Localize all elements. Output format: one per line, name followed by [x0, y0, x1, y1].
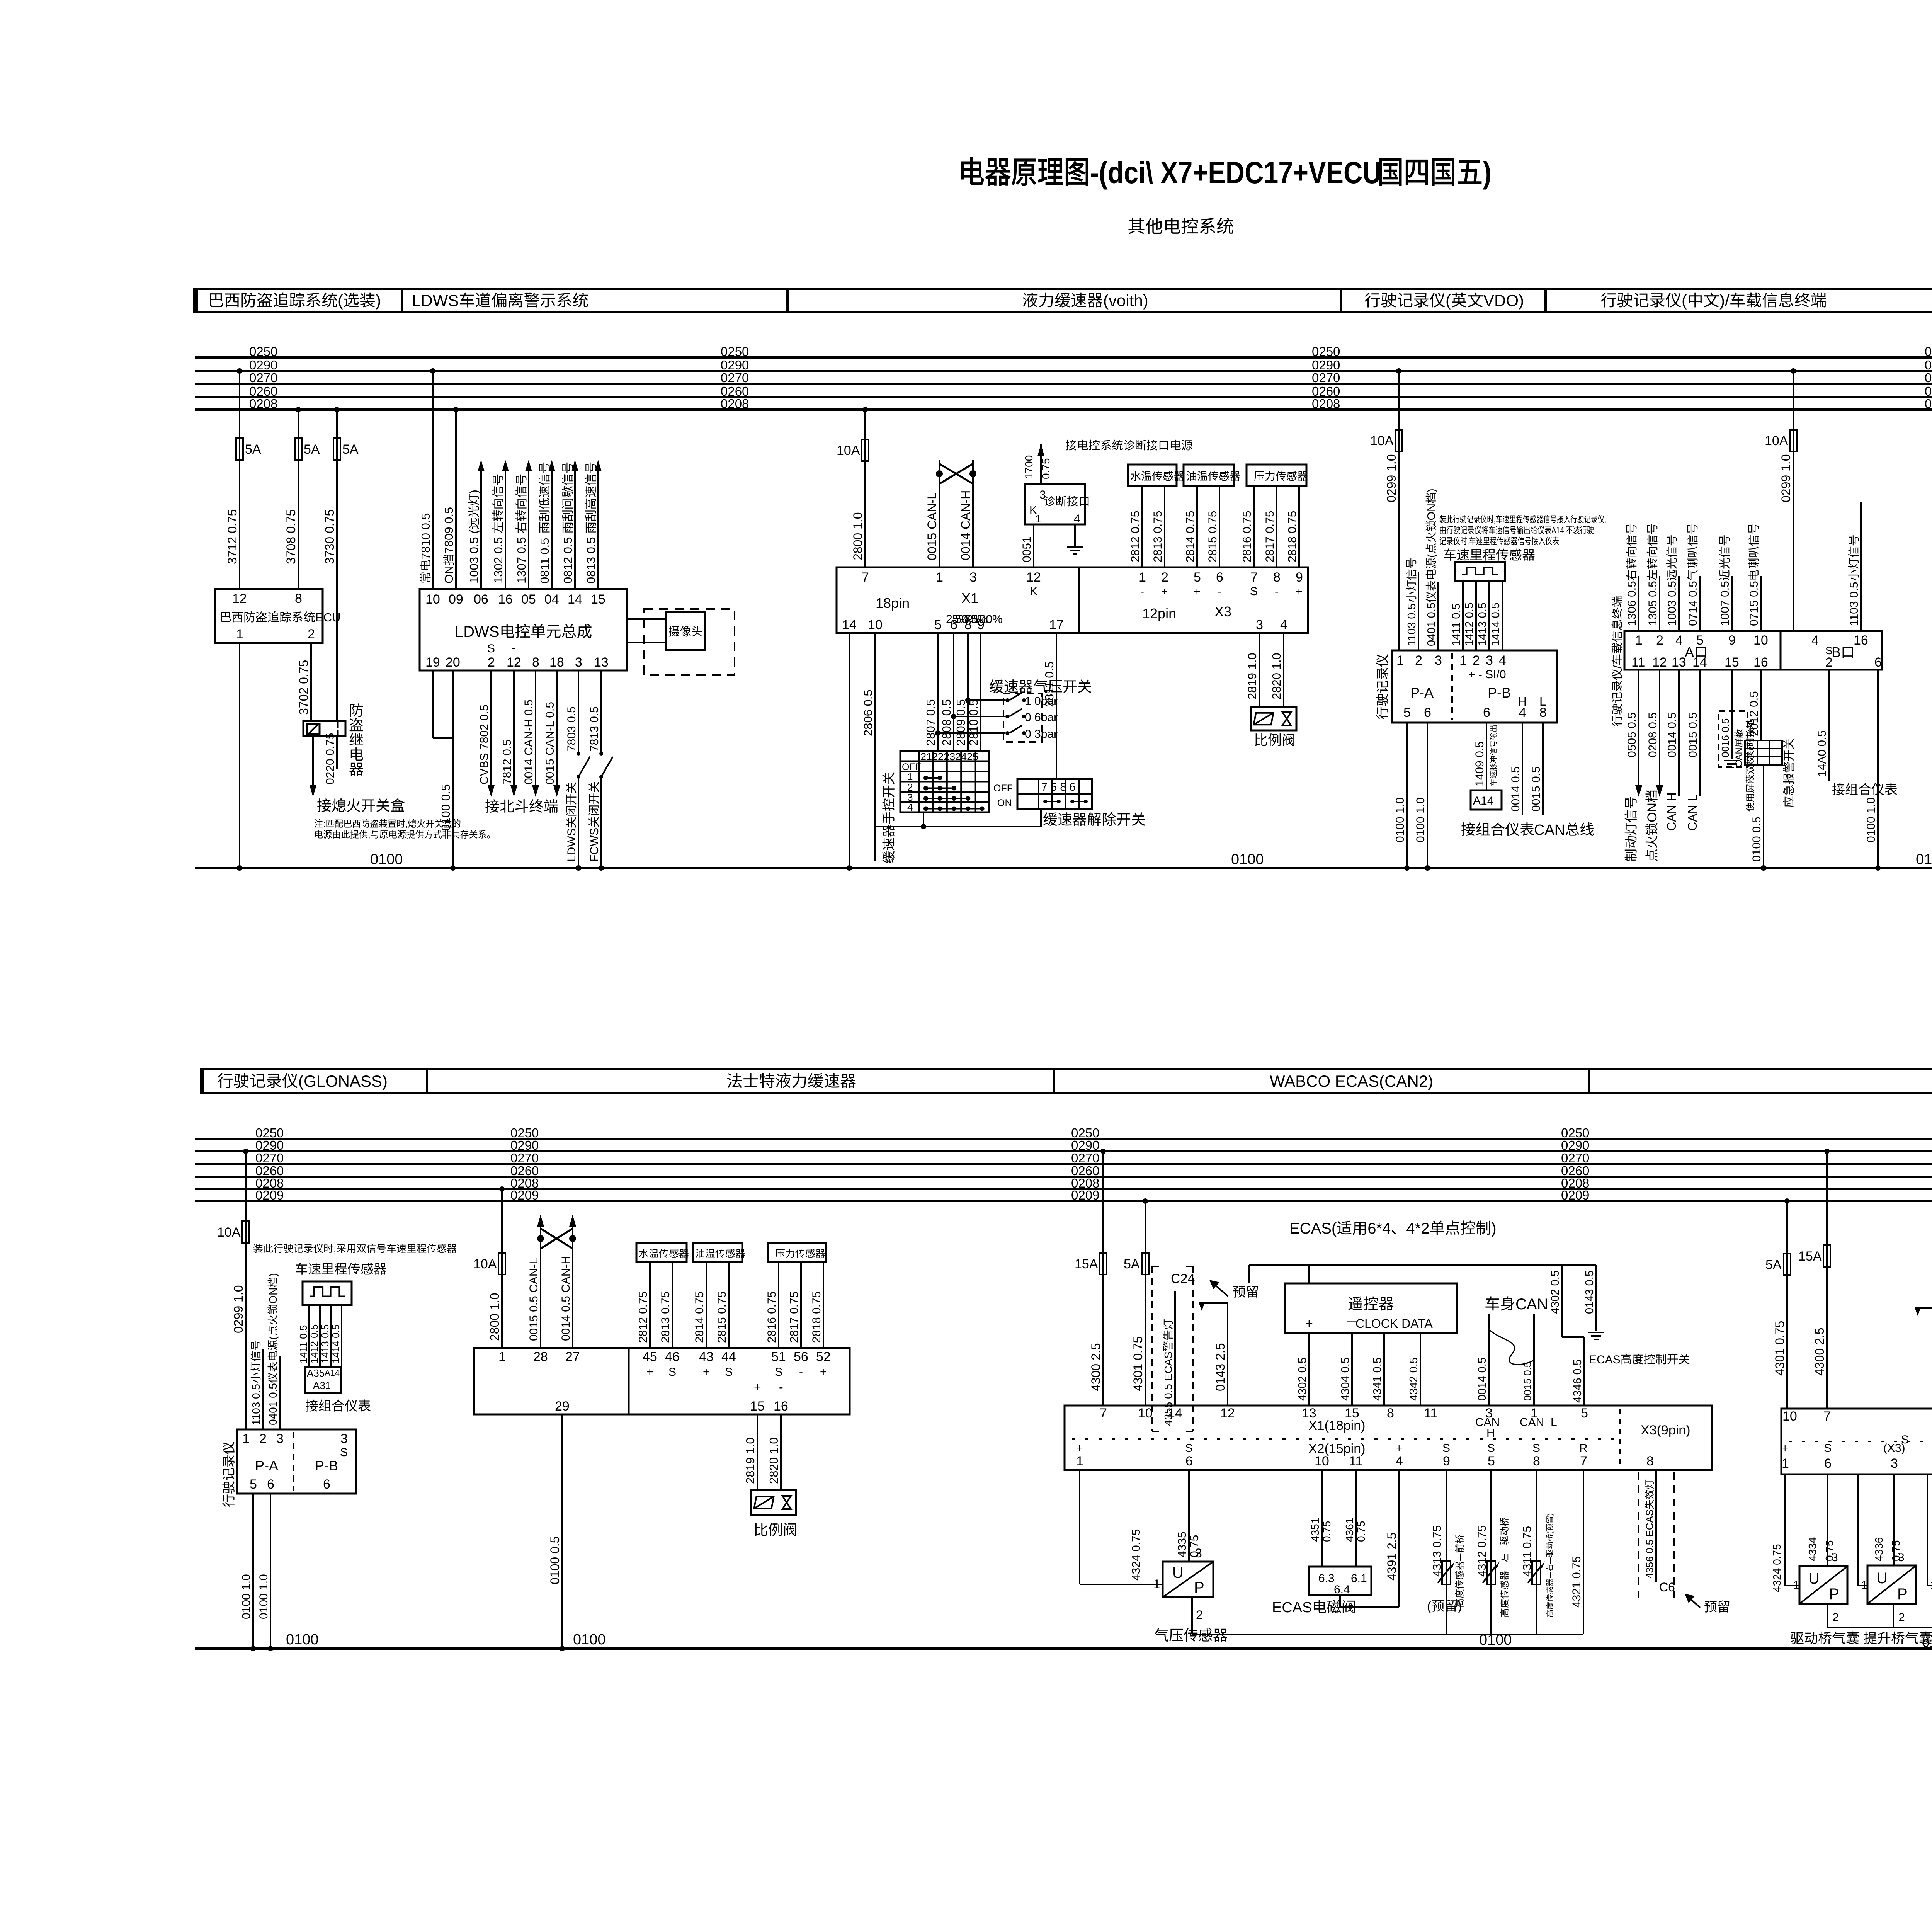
svg-text:-: - [1140, 585, 1144, 598]
svg-text:0812 0.5: 0812 0.5 [561, 537, 575, 584]
svg-text:4302 0.5: 4302 0.5 [1296, 1357, 1309, 1401]
svg-text:): ) [1546, 1513, 1554, 1516]
svg-text:2: 2 [1415, 653, 1422, 668]
svg-text:12: 12 [1220, 1406, 1235, 1421]
svg-text:1: 1 [1076, 1454, 1083, 1468]
svg-text:4301 0.75: 4301 0.75 [1773, 1321, 1787, 1376]
svg-text:): ) [467, 490, 481, 493]
svg-text:16: 16 [1854, 633, 1868, 648]
svg-text:1414 0.5: 1414 0.5 [330, 1324, 342, 1363]
svg-text:6: 6 [1874, 655, 1882, 670]
svg-text:7: 7 [1580, 1454, 1587, 1468]
svg-text:(: ( [1546, 1531, 1554, 1534]
svg-text:7 5 8 6: 7 5 8 6 [1041, 781, 1076, 793]
svg-text:CLOCK DATA: CLOCK DATA [1355, 1317, 1433, 1331]
svg-text:S: S [775, 1366, 782, 1378]
svg-text:2811 0.5: 2811 0.5 [1043, 662, 1056, 707]
svg-text:-: - [799, 1366, 803, 1378]
svg-text:U: U [1876, 1570, 1888, 1587]
svg-text:1414 0.5: 1414 0.5 [1490, 602, 1502, 646]
svg-text:43: 43 [699, 1349, 714, 1364]
svg-text:4*2: 4*2 [1406, 1220, 1429, 1237]
svg-text:A14: A14 [325, 1368, 340, 1378]
svg-text:3: 3 [1832, 1551, 1838, 1564]
svg-text:ON: ON [997, 798, 1012, 808]
svg-text:7803 0.5: 7803 0.5 [565, 706, 578, 752]
svg-text:S: S [1442, 1442, 1450, 1455]
svg-text:20: 20 [446, 655, 460, 670]
svg-text:29: 29 [555, 1399, 570, 1414]
svg-text:LDWS: LDWS [412, 291, 459, 310]
svg-text:7809 0.5: 7809 0.5 [442, 507, 456, 554]
svg-text:6.4: 6.4 [1334, 1583, 1350, 1596]
svg-text:12: 12 [1652, 655, 1667, 670]
svg-text:-: - [1218, 585, 1221, 598]
svg-text:17: 17 [1049, 618, 1064, 632]
svg-text:10: 10 [1753, 633, 1768, 648]
svg-text:16: 16 [774, 1399, 788, 1414]
svg-text:15: 15 [591, 592, 605, 607]
svg-text:2816 0.75: 2816 0.75 [765, 1292, 778, 1343]
svg-text:0715 0.5: 0715 0.5 [1748, 581, 1760, 626]
svg-text:1413 0.5: 1413 0.5 [1476, 602, 1489, 646]
svg-text:0811 0.5: 0811 0.5 [538, 538, 551, 584]
svg-text:0100: 0100 [1231, 851, 1264, 868]
svg-text:1: 1 [1396, 653, 1404, 668]
svg-text:11: 11 [1424, 1406, 1437, 1421]
svg-text:S: S [1487, 1442, 1495, 1455]
svg-text:OFF: OFF [993, 783, 1013, 794]
svg-text:3: 3 [1435, 653, 1442, 668]
svg-text:8: 8 [1387, 1406, 1394, 1421]
svg-text:14: 14 [1168, 1406, 1182, 1421]
svg-text:-: - [1275, 585, 1279, 598]
svg-text:6.1: 6.1 [1351, 1572, 1367, 1585]
svg-text:12pin: 12pin [1142, 606, 1176, 621]
svg-text:ECAS(: ECAS( [1289, 1220, 1337, 1237]
svg-text:3: 3 [1898, 1551, 1905, 1564]
svg-text:52: 52 [816, 1349, 831, 1364]
svg-text:5: 5 [1488, 1454, 1495, 1468]
svg-text:0100: 0100 [286, 1632, 319, 1648]
svg-text:3702 0.75: 3702 0.75 [297, 660, 311, 715]
svg-text:16: 16 [1753, 655, 1768, 670]
svg-text:2: 2 [1832, 1611, 1839, 1624]
svg-text:,: , [405, 819, 408, 829]
svg-text:0299 1.0: 0299 1.0 [1384, 454, 1398, 502]
svg-text:+ - SI/0: + - SI/0 [1468, 668, 1506, 681]
svg-text:WABCO ECAS(CAN2): WABCO ECAS(CAN2) [1270, 1072, 1433, 1090]
svg-text:2812 0.75: 2812 0.75 [637, 1292, 650, 1343]
svg-text:4: 4 [1396, 1454, 1403, 1468]
svg-text:0014 0.5: 0014 0.5 [1476, 1357, 1488, 1401]
svg-text:9: 9 [1728, 633, 1736, 648]
svg-text:15A: 15A [1798, 1249, 1822, 1264]
svg-text:4324 0.75: 4324 0.75 [1771, 1544, 1783, 1592]
svg-text:6: 6 [1185, 1454, 1193, 1468]
svg-text:0143 0.5: 0143 0.5 [1583, 1270, 1596, 1314]
svg-text:27: 27 [565, 1349, 580, 1364]
svg-text:,: , [333, 1243, 336, 1254]
svg-text:44: 44 [721, 1349, 736, 1364]
svg-text:15: 15 [750, 1399, 765, 1414]
svg-text:13: 13 [594, 655, 609, 670]
svg-text:FCWS: FCWS [588, 828, 601, 862]
svg-text:1412 0.5: 1412 0.5 [1463, 602, 1476, 646]
svg-text:P: P [1829, 1586, 1839, 1603]
svg-text:2813 0.75: 2813 0.75 [1151, 511, 1164, 562]
svg-text:(: ( [338, 291, 343, 310]
svg-text:A14: A14 [1473, 795, 1493, 807]
svg-text:3730 0.75: 3730 0.75 [323, 509, 337, 564]
svg-text:15A: 15A [1075, 1257, 1098, 1271]
svg-text:(: ( [1427, 1599, 1432, 1614]
svg-text:45: 45 [643, 1349, 657, 1364]
svg-text:2: 2 [259, 1431, 267, 1446]
svg-text:4304 0.5: 4304 0.5 [1339, 1357, 1352, 1401]
svg-text:8: 8 [532, 655, 539, 670]
svg-text:B: B [1832, 644, 1841, 660]
svg-text:0015 CAN-L: 0015 CAN-L [925, 492, 939, 560]
svg-text:1103 0.5: 1103 0.5 [250, 1384, 262, 1425]
svg-text:S: S [1250, 585, 1258, 598]
svg-text:0100: 0100 [573, 1632, 606, 1648]
svg-text:18: 18 [549, 655, 564, 670]
svg-text:0014 0.5: 0014 0.5 [1509, 766, 1522, 812]
svg-text:4300 2.5: 4300 2.5 [1813, 1327, 1827, 1376]
svg-text:5A: 5A [245, 442, 261, 457]
svg-text:6: 6 [950, 618, 957, 632]
svg-text:4361: 4361 [1344, 1518, 1355, 1542]
svg-text:9: 9 [977, 618, 985, 632]
svg-text:1306 0.5: 1306 0.5 [1626, 581, 1638, 626]
svg-text:1413 0.5: 1413 0.5 [319, 1324, 331, 1363]
svg-text:2815 0.75: 2815 0.75 [1206, 511, 1219, 562]
svg-text:P: P [1194, 1579, 1204, 1596]
svg-text:VDO): VDO) [1483, 291, 1524, 310]
svg-text:LDWS: LDWS [455, 623, 500, 640]
svg-text:1: 1 [242, 1431, 250, 1446]
svg-text:0015 0.5: 0015 0.5 [1530, 766, 1543, 812]
svg-text:U: U [1172, 1564, 1184, 1581]
svg-text:18pin: 18pin [876, 595, 910, 611]
svg-text:ON: ON [267, 1288, 279, 1304]
svg-text:0015 0.5 CAN-L: 0015 0.5 CAN-L [527, 1258, 540, 1341]
svg-text:4: 4 [1811, 633, 1819, 648]
svg-text:5A: 5A [1765, 1257, 1782, 1272]
svg-text:+: + [1305, 1316, 1313, 1331]
svg-text:5A: 5A [304, 442, 320, 457]
svg-text:10: 10 [1782, 1409, 1797, 1424]
svg-text:CAN L: CAN L [1685, 795, 1699, 831]
svg-text:)/: )/ [1719, 291, 1730, 310]
svg-text:X1: X1 [961, 590, 978, 606]
svg-text:ON: ON [442, 566, 456, 584]
svg-text:04: 04 [544, 592, 559, 607]
svg-text:4: 4 [1280, 618, 1287, 632]
svg-text:1003 0.5 (: 1003 0.5 ( [467, 529, 481, 584]
svg-text:(voith): (voith) [1103, 291, 1148, 310]
svg-text:1411 0.5: 1411 0.5 [1450, 603, 1463, 646]
svg-text:8: 8 [1646, 1454, 1654, 1468]
svg-text:C24: C24 [1171, 1271, 1195, 1286]
svg-text:CAN_L: CAN_L [1520, 1416, 1557, 1429]
svg-text:1302 0.5: 1302 0.5 [492, 537, 505, 584]
svg-text:10: 10 [868, 618, 883, 632]
svg-text:0299 1.0: 0299 1.0 [231, 1285, 245, 1333]
svg-text:CAN: CAN [1515, 1296, 1548, 1313]
svg-text:S: S [668, 1366, 676, 1378]
svg-text:4346 0.5: 4346 0.5 [1571, 1359, 1584, 1403]
svg-text:6: 6 [1424, 705, 1431, 720]
svg-text:10A: 10A [1765, 434, 1788, 448]
svg-text:S: S [340, 1446, 348, 1459]
svg-text:ON: ON [1645, 803, 1660, 822]
svg-text:S: S [725, 1366, 733, 1378]
svg-text:,: , [368, 830, 370, 840]
svg-text:12: 12 [1026, 570, 1041, 585]
svg-text:-(dci\ X7+EDC17+VECU: -(dci\ X7+EDC17+VECU [1090, 155, 1381, 190]
svg-text:0208 0.5: 0208 0.5 [1646, 712, 1659, 757]
svg-text:2818 0.75: 2818 0.75 [810, 1292, 823, 1343]
svg-text:09: 09 [449, 592, 463, 607]
svg-text:0714 0.5: 0714 0.5 [1687, 581, 1699, 626]
svg-text:4302 0.5: 4302 0.5 [1549, 1270, 1561, 1314]
svg-text:1305 0.5: 1305 0.5 [1646, 581, 1659, 626]
svg-text:2: 2 [1161, 570, 1168, 585]
svg-text:1003 0.5: 1003 0.5 [1666, 581, 1679, 626]
svg-text:-: - [512, 641, 516, 655]
svg-text:0100 1.0: 0100 1.0 [1394, 797, 1406, 842]
svg-text:2817 0.75: 2817 0.75 [788, 1292, 801, 1343]
svg-text:,: , [1467, 536, 1469, 546]
svg-text:3: 3 [969, 570, 977, 585]
svg-text:3: 3 [1256, 618, 1263, 632]
svg-text:0051: 0051 [1020, 536, 1033, 562]
svg-text:1007 0.5: 1007 0.5 [1719, 581, 1731, 626]
svg-text:7: 7 [862, 570, 869, 585]
svg-text:0014 CAN-H: 0014 CAN-H [959, 490, 973, 560]
svg-text:5: 5 [1194, 570, 1201, 585]
svg-text:11: 11 [1349, 1454, 1362, 1468]
svg-text:8: 8 [964, 618, 972, 632]
svg-text:(: ( [1446, 291, 1451, 310]
svg-text:CAN H: CAN H [1665, 792, 1679, 831]
svg-text:9: 9 [1296, 570, 1303, 585]
svg-text:05: 05 [521, 592, 536, 607]
svg-text:0100 1.0: 0100 1.0 [1414, 797, 1427, 842]
svg-text:2818 0.75: 2818 0.75 [1286, 511, 1299, 562]
svg-text:): ) [267, 1273, 279, 1276]
svg-text:0100: 0100 [1916, 851, 1932, 868]
svg-text:56: 56 [794, 1349, 808, 1364]
svg-text:2: 2 [488, 655, 495, 670]
svg-text:2808 0.5: 2808 0.5 [940, 699, 953, 746]
svg-text:5: 5 [1696, 633, 1704, 648]
svg-text:2807 0.5: 2807 0.5 [924, 699, 937, 746]
svg-text:8: 8 [1533, 1454, 1540, 1468]
svg-text:+: + [820, 1366, 827, 1378]
svg-text:,: , [1494, 515, 1496, 525]
svg-text:14A0 0.5: 14A0 0.5 [1816, 730, 1828, 777]
svg-text:12: 12 [232, 591, 247, 606]
svg-text:): ) [1483, 155, 1492, 190]
svg-text:3: 3 [1486, 653, 1493, 668]
svg-text:P-B: P-B [315, 1458, 338, 1474]
svg-text:6: 6 [323, 1477, 330, 1492]
svg-text:S: S [1824, 1442, 1832, 1455]
svg-text:06: 06 [474, 592, 488, 607]
svg-text:7812 0.5: 7812 0.5 [501, 739, 514, 784]
svg-text:H: H [1486, 1427, 1495, 1440]
svg-text:4336: 4336 [1873, 1537, 1885, 1561]
svg-text:2819 1.0: 2819 1.0 [743, 1437, 757, 1484]
svg-text:ON: ON [1425, 504, 1438, 521]
svg-text:0100: 0100 [1923, 1637, 1932, 1650]
svg-text:2813 0.75: 2813 0.75 [659, 1292, 672, 1343]
svg-text:2800 1.0: 2800 1.0 [851, 512, 865, 560]
svg-text:2012 0.5: 2012 0.5 [1748, 691, 1760, 736]
svg-text:7813 0.5: 7813 0.5 [588, 706, 601, 752]
svg-text:2819 1.0: 2819 1.0 [1245, 653, 1259, 699]
svg-text:ECAS: ECAS [1272, 1600, 1312, 1616]
svg-text:9: 9 [1443, 1454, 1450, 1468]
svg-text:U: U [1808, 1570, 1820, 1587]
svg-text:4324 0.75: 4324 0.75 [1130, 1529, 1143, 1581]
svg-text:S: S [1901, 1433, 1909, 1446]
svg-text:1700: 1700 [1023, 455, 1035, 479]
svg-text:+: + [703, 1366, 710, 1378]
svg-text:0015 0.5: 0015 0.5 [1687, 712, 1699, 757]
svg-text:1: 1 [498, 1349, 506, 1364]
svg-text:10A: 10A [473, 1257, 497, 1271]
svg-text:X3: X3 [1214, 604, 1231, 619]
svg-text:K: K [1030, 585, 1037, 598]
svg-text:1: 1 [1635, 633, 1643, 648]
svg-text:+: + [754, 1380, 761, 1394]
svg-text:P-A: P-A [1410, 685, 1434, 701]
svg-text:-: - [779, 1380, 783, 1394]
svg-text:0100: 0100 [370, 851, 403, 868]
svg-text:+: + [1782, 1442, 1789, 1455]
svg-text:3: 3 [1039, 488, 1046, 501]
svg-text:4391 2.5: 4391 2.5 [1385, 1532, 1399, 1581]
svg-text:5: 5 [934, 618, 942, 632]
svg-text:10A: 10A [837, 443, 860, 458]
svg-text:0100 1.0: 0100 1.0 [257, 1574, 270, 1619]
svg-text:): ) [1491, 1220, 1496, 1237]
svg-text:1: 1 [236, 627, 243, 642]
svg-text:16: 16 [498, 592, 513, 607]
svg-text:1411 0.5: 1411 0.5 [298, 1325, 309, 1363]
svg-text:/: / [1611, 665, 1624, 669]
svg-text:11: 11 [1631, 655, 1645, 670]
svg-text:+: + [1161, 585, 1168, 598]
svg-text:2816 0.75: 2816 0.75 [1241, 511, 1253, 562]
svg-text:14: 14 [568, 592, 582, 607]
svg-text:2817 0.75: 2817 0.75 [1264, 511, 1276, 562]
svg-text:2: 2 [1898, 1611, 1905, 1624]
svg-text:): ) [1425, 488, 1438, 492]
svg-text:0100 0.5: 0100 0.5 [548, 1536, 562, 1584]
svg-text:3712 0.75: 3712 0.75 [225, 509, 239, 564]
svg-text:1: 1 [1459, 653, 1467, 668]
svg-text:P-B: P-B [1488, 685, 1511, 701]
svg-text:2814 0.75: 2814 0.75 [693, 1292, 706, 1343]
svg-text:P-A: P-A [255, 1458, 278, 1474]
svg-text:1: 1 [1139, 570, 1146, 585]
svg-text:10: 10 [1138, 1406, 1153, 1421]
svg-text:+: + [1194, 585, 1201, 598]
svg-text:0015 CAN-L 0.5: 0015 CAN-L 0.5 [544, 702, 556, 784]
svg-text:14: 14 [842, 618, 857, 632]
svg-text:4334: 4334 [1806, 1537, 1818, 1561]
svg-text:X3(9pin): X3(9pin) [1641, 1423, 1690, 1438]
svg-text:0015 0.5: 0015 0.5 [1522, 1362, 1533, 1401]
svg-text:0401 0.5: 0401 0.5 [267, 1383, 279, 1425]
svg-text:0016 0.5: 0016 0.5 [1719, 718, 1731, 757]
svg-text:0220 0.75: 0220 0.75 [324, 733, 337, 784]
svg-text:2806 0.5: 2806 0.5 [861, 689, 875, 736]
svg-text:0014 0.5 CAN-H: 0014 0.5 CAN-H [560, 1256, 572, 1341]
svg-text:46: 46 [665, 1349, 680, 1364]
svg-text:2810 0.5: 2810 0.5 [967, 699, 980, 746]
svg-text:2: 2 [1656, 633, 1663, 648]
svg-text:A31: A31 [313, 1380, 331, 1391]
svg-text:10: 10 [425, 592, 440, 607]
svg-text:CAN: CAN [1534, 822, 1565, 838]
svg-text:0 6bar: 0 6bar [1025, 711, 1058, 724]
svg-text:+: + [646, 1366, 653, 1378]
svg-text:(: ( [1682, 291, 1687, 310]
svg-text:0100 0.5: 0100 0.5 [439, 784, 452, 831]
svg-text:6: 6 [1824, 1456, 1832, 1471]
svg-text:1: 1 [1782, 1456, 1789, 1471]
svg-text:3: 3 [340, 1431, 348, 1446]
svg-text:0100 1.0: 0100 1.0 [1865, 797, 1878, 842]
svg-text:4: 4 [1074, 512, 1080, 525]
svg-text:1103 0.5: 1103 0.5 [1848, 582, 1861, 626]
svg-text:7: 7 [1100, 1406, 1107, 1421]
svg-text:19: 19 [425, 655, 440, 670]
svg-text:3: 3 [1195, 1546, 1202, 1560]
svg-text:6: 6 [1216, 570, 1223, 585]
svg-text:8: 8 [1273, 570, 1281, 585]
svg-text:0100 1.0: 0100 1.0 [240, 1574, 253, 1619]
svg-text:A14;: A14; [1551, 526, 1566, 536]
svg-text:2820 1.0: 2820 1.0 [1270, 653, 1283, 699]
svg-text:1: 1 [1035, 513, 1041, 525]
svg-text:1103 0.5: 1103 0.5 [1406, 603, 1418, 646]
svg-text:0100 0.5: 0100 0.5 [1750, 817, 1763, 862]
svg-text:0813 0.5: 0813 0.5 [584, 537, 598, 584]
svg-text:14: 14 [1692, 655, 1707, 670]
svg-text:10: 10 [1315, 1454, 1329, 1468]
svg-text:4300 2.5: 4300 2.5 [1089, 1343, 1103, 1391]
svg-text:0505 0.5: 0505 0.5 [1626, 712, 1638, 757]
svg-text:1307 0.5: 1307 0.5 [515, 537, 528, 584]
svg-text:15: 15 [1725, 655, 1739, 670]
svg-text:0401 0.5: 0401 0.5 [1425, 602, 1438, 646]
svg-text:7810 0.5: 7810 0.5 [419, 513, 432, 560]
svg-text:8: 8 [1539, 705, 1547, 720]
svg-text:R: R [1579, 1442, 1588, 1455]
svg-text:7: 7 [1250, 570, 1258, 585]
svg-text:1: 1 [936, 570, 943, 585]
svg-text:0143 2.5: 0143 2.5 [1929, 1343, 1932, 1391]
svg-text:2812 0.75: 2812 0.75 [1129, 511, 1142, 562]
svg-text:13: 13 [1672, 655, 1686, 670]
